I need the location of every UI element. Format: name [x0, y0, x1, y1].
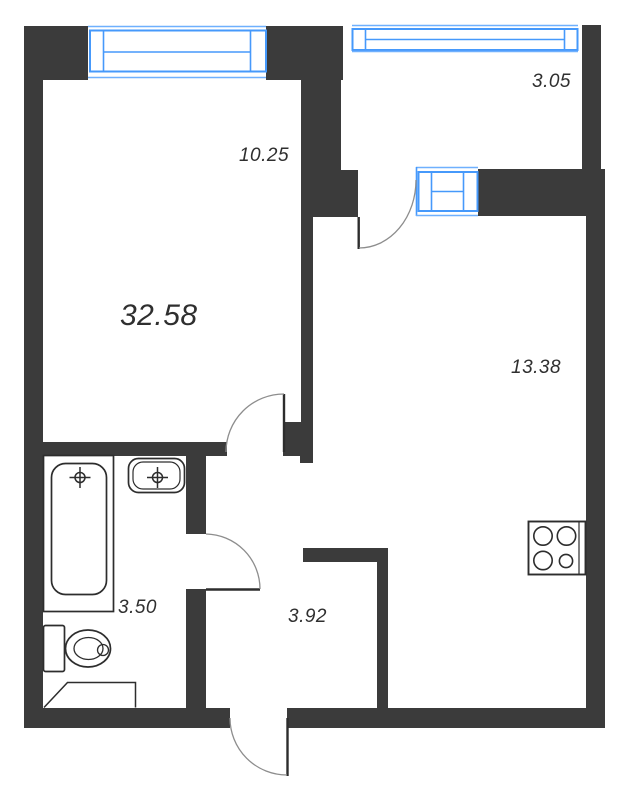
bathtub	[44, 456, 114, 612]
entrance-door	[230, 718, 288, 776]
balcony-window	[352, 26, 578, 52]
burner-top-right	[557, 527, 575, 545]
toilet	[44, 626, 111, 672]
bathtub-drain-icon	[70, 467, 91, 488]
area-label-room: 10.25	[214, 146, 314, 165]
bathroom-door	[206, 534, 260, 590]
area-label-hallway: 3.92	[288, 607, 325, 626]
burner-top-left	[534, 527, 552, 545]
stove	[529, 522, 586, 575]
area-label-total: 32.58	[120, 301, 194, 331]
plan-linework	[0, 0, 636, 800]
room-window	[88, 27, 266, 78]
balcony-door-window	[416, 167, 478, 216]
balcony-door-arc	[359, 180, 416, 248]
entrance-door-arc	[230, 718, 287, 775]
sink	[129, 459, 185, 493]
area-label-balcony: 3.05	[532, 72, 569, 91]
burner-bottom-right	[559, 554, 572, 567]
bathroom-door-arc	[206, 534, 260, 589]
area-label-kitchen: 13.38	[511, 358, 559, 377]
washing-machine-slot	[44, 683, 136, 708]
room-door-arc	[226, 394, 284, 452]
floor-plan: 32.58 10.25 3.05 13.38 3.50 3.92	[0, 0, 636, 800]
area-label-bathroom: 3.50	[118, 598, 155, 617]
burner-bottom-left	[534, 551, 552, 569]
room-door	[226, 394, 284, 452]
sink-faucet-icon	[147, 467, 168, 488]
balcony-door	[359, 180, 416, 249]
